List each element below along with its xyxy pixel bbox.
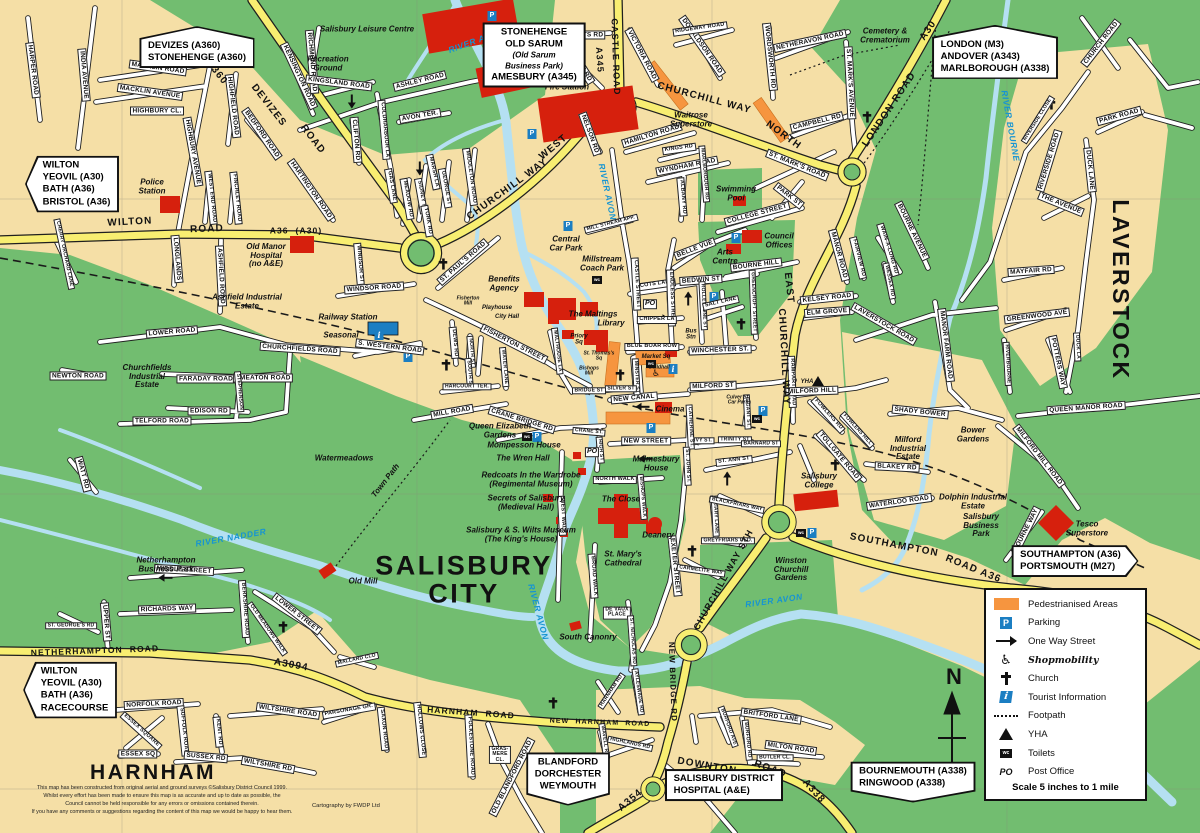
legend-label: Toilets — [1028, 748, 1055, 759]
yha-icon — [999, 728, 1013, 740]
info-icon: i — [999, 691, 1013, 703]
legend-label: Church — [1028, 673, 1059, 684]
church-icon — [1047, 98, 1056, 109]
church-icon — [439, 258, 448, 269]
legend-item-yha: YHA — [993, 725, 1138, 744]
map-legend: Pedestrianised AreasPParkingOne Way Stre… — [984, 588, 1147, 801]
toilets-icon: wc — [796, 529, 806, 537]
parking-icon: P — [533, 432, 542, 442]
legend-icon-cell — [993, 672, 1019, 685]
church-icon — [549, 697, 558, 708]
north-label: N — [936, 664, 972, 690]
cartography-credit: Cartography by FWDP Ltd — [312, 803, 380, 809]
legend-label: Tourist Information — [1028, 692, 1106, 703]
oneway-icon — [694, 441, 707, 443]
legend-item-shopmobility: ♿Shopmobility — [993, 651, 1138, 670]
toilets-icon: wc — [522, 433, 532, 441]
oneway-icon — [996, 640, 1016, 642]
legend-icon-cell — [993, 715, 1019, 717]
parking-icon: P — [488, 11, 497, 21]
legend-label: Shopmobility — [1028, 655, 1099, 666]
oneway-icon — [655, 317, 668, 319]
legend-scale: Scale 5 inches to 1 mile — [993, 782, 1138, 793]
legend-item-oneway: One Way Street — [993, 632, 1138, 651]
info-icon: i — [669, 364, 678, 374]
legend-icon-cell: ♿ — [993, 653, 1019, 668]
oneway-icon — [419, 162, 421, 175]
toilets-icon: wc — [646, 360, 656, 368]
legend-item-info: iTourist Information — [993, 688, 1138, 707]
church-icon — [688, 545, 697, 556]
legend-items: Pedestrianised AreasPParkingOne Way Stre… — [993, 595, 1138, 781]
oneway-icon — [640, 458, 653, 460]
legend-icon-cell: wc — [993, 749, 1019, 758]
oneway-icon — [687, 293, 689, 306]
info-icon: i — [375, 330, 384, 340]
church-icon — [442, 359, 451, 370]
legend-item-parking: PParking — [993, 614, 1138, 633]
legend-icon-cell: P — [993, 617, 1019, 629]
legend-label: Post Office — [1028, 766, 1074, 777]
church-icon — [831, 459, 840, 470]
parking-icon: P — [710, 292, 719, 302]
legend-item-toilets: wcToilets — [993, 744, 1138, 763]
oneway-icon — [706, 350, 719, 352]
oneway-icon — [160, 577, 173, 579]
pedestrian-icon — [994, 598, 1019, 610]
legend-label: Footpath — [1028, 710, 1066, 721]
salisbury-city-map: N Pedestrianised AreasPParkingOne Way St… — [0, 0, 1200, 833]
oneway-icon — [637, 406, 650, 408]
oneway-icon — [351, 95, 353, 108]
legend-icon-cell: i — [993, 691, 1019, 703]
parking-icon: P — [528, 129, 537, 139]
church-icon — [1001, 672, 1011, 685]
parking-icon: P — [564, 221, 573, 231]
church-icon — [863, 111, 872, 122]
parking-icon: P — [732, 233, 741, 243]
po-icon: PO — [999, 767, 1012, 777]
map-disclaimer: This map has been constructed from origi… — [12, 784, 312, 816]
legend-icon-cell — [993, 728, 1019, 740]
parking-icon: P — [1000, 617, 1012, 629]
legend-icon-cell: PO — [993, 767, 1019, 777]
toilets-icon: wc — [752, 415, 762, 423]
parking-icon: P — [404, 352, 413, 362]
toilets-icon: wc — [1000, 749, 1012, 758]
oneway-icon — [726, 473, 728, 486]
legend-label: Pedestrianised Areas — [1028, 599, 1118, 610]
parking-icon: P — [647, 423, 656, 433]
legend-label: Parking — [1028, 617, 1060, 628]
yha-icon — [812, 376, 824, 386]
legend-item-pedestrian: Pedestrianised Areas — [993, 595, 1138, 614]
legend-item-footpath: Footpath — [993, 707, 1138, 726]
church-icon — [616, 369, 625, 380]
church-icon — [737, 318, 746, 329]
legend-icon-cell — [993, 598, 1019, 610]
legend-label: YHA — [1028, 729, 1048, 740]
legend-label: One Way Street — [1028, 636, 1095, 647]
church-icon — [279, 621, 288, 632]
legend-item-po: POPost Office — [993, 762, 1138, 781]
legend-item-church: Church — [993, 669, 1138, 688]
footpath-icon — [994, 715, 1018, 717]
legend-icon-cell — [993, 640, 1019, 642]
parking-icon: P — [808, 528, 817, 538]
toilets-icon: wc — [592, 276, 602, 284]
shopmobility-icon: ♿ — [652, 369, 660, 379]
north-indicator: N — [936, 664, 972, 784]
shopmobility-icon: ♿ — [1000, 653, 1012, 668]
